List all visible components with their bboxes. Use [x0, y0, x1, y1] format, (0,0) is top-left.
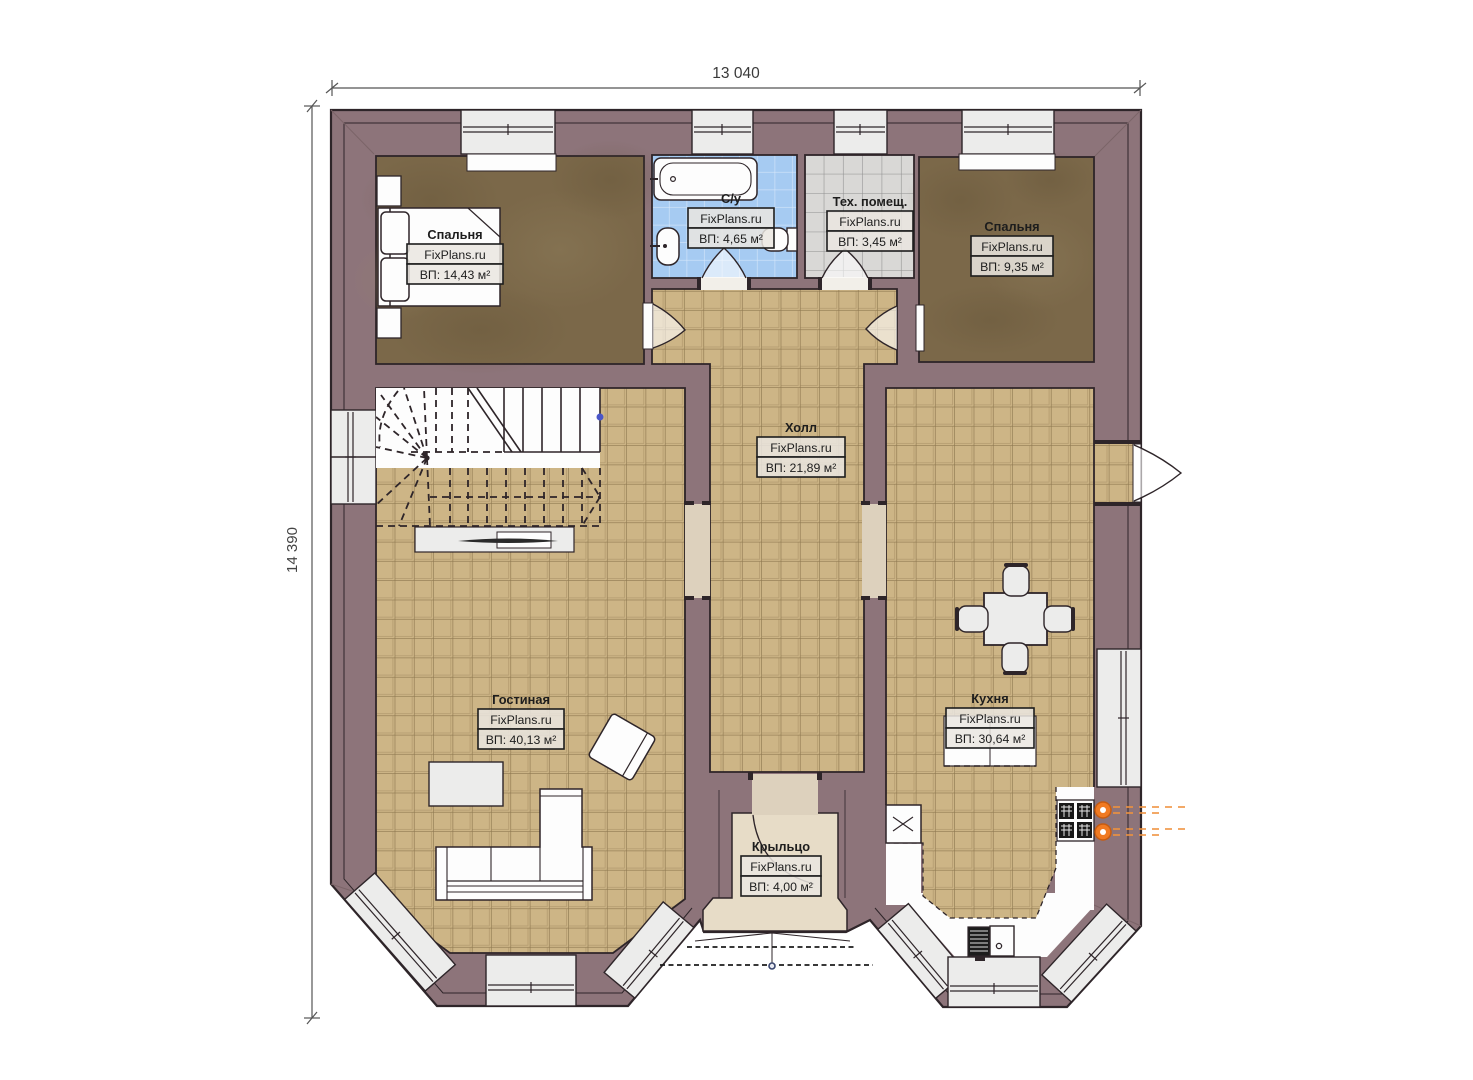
svg-text:Холл: Холл: [785, 420, 817, 435]
svg-text:Тех. помещ.: Тех. помещ.: [833, 194, 908, 209]
svg-text:FixPlans.ru: FixPlans.ru: [490, 713, 552, 727]
svg-text:Кухня: Кухня: [971, 691, 1008, 706]
svg-text:FixPlans.ru: FixPlans.ru: [700, 212, 762, 226]
svg-text:С/у: С/у: [721, 191, 742, 206]
svg-text:Спальня: Спальня: [984, 219, 1039, 234]
svg-text:FixPlans.ru: FixPlans.ru: [959, 712, 1021, 726]
svg-text:Спальня: Спальня: [427, 227, 482, 242]
svg-text:FixPlans.ru: FixPlans.ru: [750, 860, 812, 874]
svg-text:ВП: 9,35 м²: ВП: 9,35 м²: [980, 260, 1044, 274]
svg-text:Крыльцо: Крыльцо: [752, 839, 810, 854]
svg-text:13 040: 13 040: [712, 65, 760, 82]
svg-text:ВП: 14,43 м²: ВП: 14,43 м²: [420, 268, 491, 282]
svg-text:FixPlans.ru: FixPlans.ru: [981, 240, 1043, 254]
svg-text:14 390: 14 390: [284, 527, 301, 573]
svg-text:ВП: 21,89 м²: ВП: 21,89 м²: [766, 461, 837, 475]
svg-text:ВП: 40,13 м²: ВП: 40,13 м²: [486, 733, 557, 747]
svg-text:ВП: 4,00 м²: ВП: 4,00 м²: [749, 880, 813, 894]
svg-text:ВП: 3,45 м²: ВП: 3,45 м²: [838, 235, 902, 249]
svg-text:Гостиная: Гостиная: [492, 692, 550, 707]
svg-text:FixPlans.ru: FixPlans.ru: [770, 441, 832, 455]
svg-text:ВП: 30,64 м²: ВП: 30,64 м²: [955, 732, 1026, 746]
svg-text:FixPlans.ru: FixPlans.ru: [424, 248, 486, 262]
svg-text:ВП: 4,65 м²: ВП: 4,65 м²: [699, 232, 763, 246]
svg-text:FixPlans.ru: FixPlans.ru: [839, 215, 901, 229]
